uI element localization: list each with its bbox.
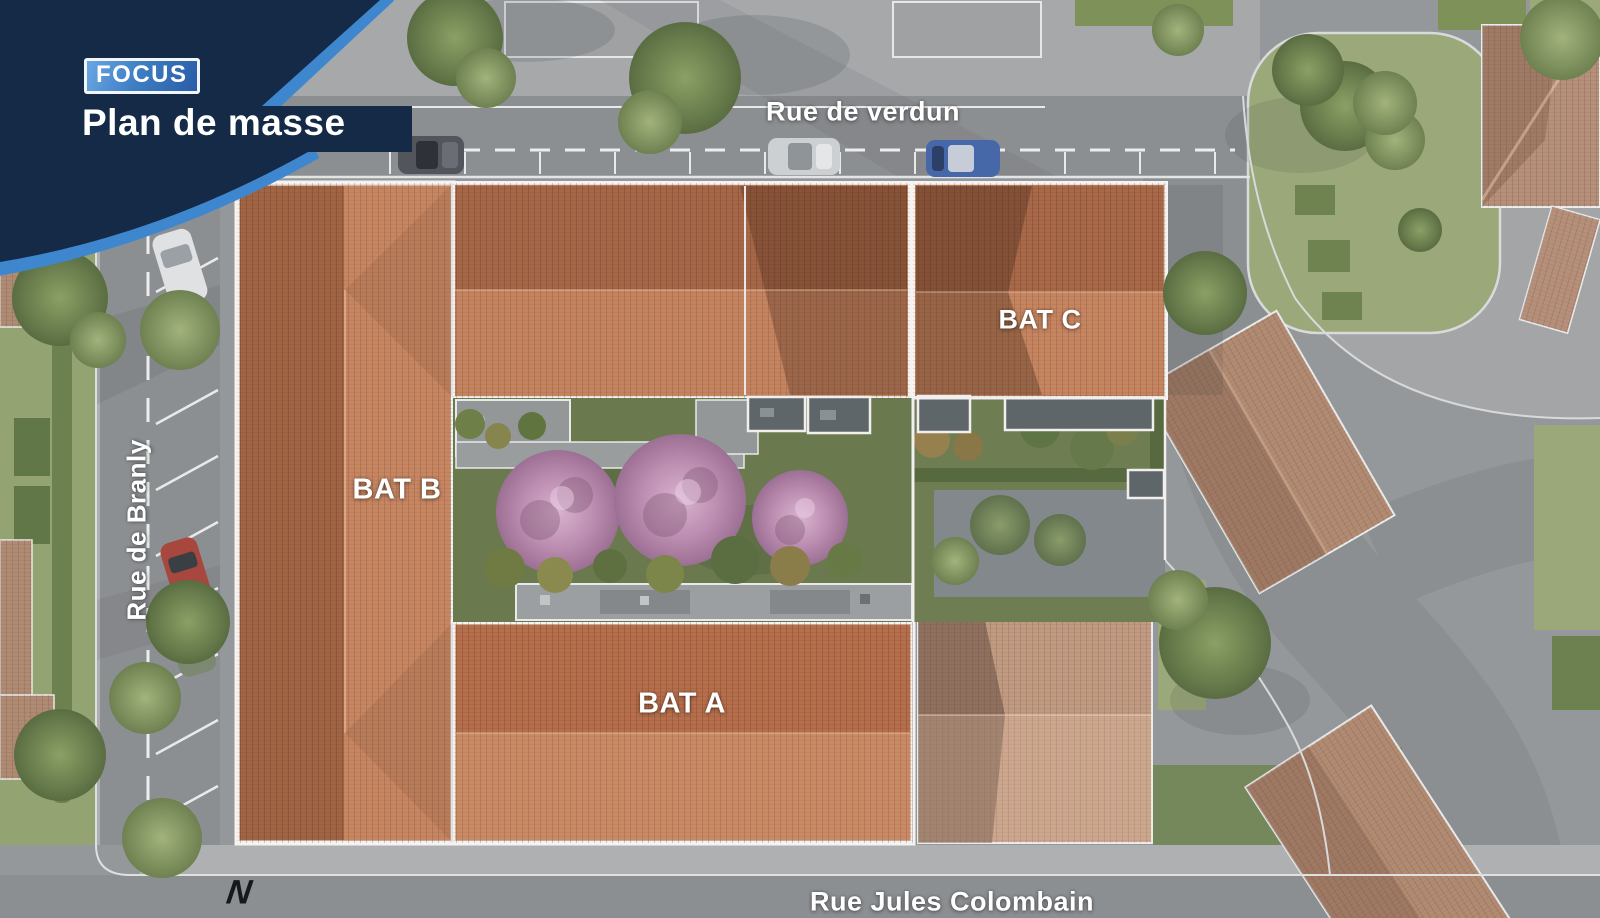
building-label-bat-a: BAT A [638, 688, 726, 721]
street-label-rue-de-branly: Rue de Branly [122, 439, 153, 620]
screenshot-root: FOCUS Plan de masse Rue de verdun Rue de… [0, 0, 1600, 918]
north-indicator: N [224, 874, 254, 913]
top-wing-roof [345, 183, 910, 398]
building-label-bat-b: BAT B [353, 474, 442, 507]
focus-badge-label: FOCUS [96, 61, 188, 88]
car-dark [398, 136, 464, 174]
bat-a-roof [345, 622, 913, 843]
neighbor-roof-square [918, 597, 1152, 843]
focus-badge: FOCUS [84, 58, 200, 94]
courtyard [453, 396, 1165, 622]
street-label-rue-de-verdun: Rue de verdun [766, 97, 960, 128]
page-title: Plan de masse [82, 102, 346, 144]
street-label-rue-jules-colombain: Rue Jules Colombain [810, 887, 1094, 918]
car-silver [768, 138, 840, 175]
building-label-bat-c: BAT C [999, 305, 1082, 336]
neighbor-roof-left-2 [0, 540, 32, 698]
car-blue [926, 140, 1000, 177]
bat-c-roof [913, 183, 1166, 398]
